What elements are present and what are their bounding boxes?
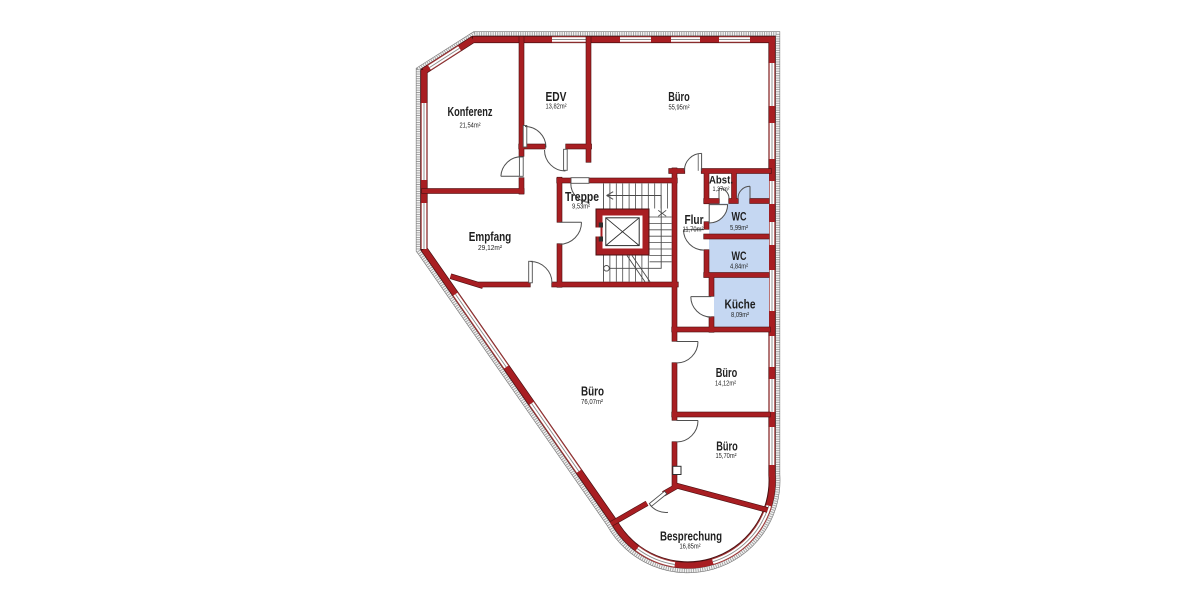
svg-text:1,37m²: 1,37m² [713,186,731,193]
svg-text:Küche: Küche [725,297,756,312]
svg-text:13,82m²: 13,82m² [546,104,568,111]
svg-text:Besprechung: Besprechung [660,529,722,544]
svg-text:11,70m²: 11,70m² [683,227,705,234]
svg-text:21,54m²: 21,54m² [460,123,482,130]
svg-text:Büro: Büro [581,384,604,399]
svg-text:9,53m²: 9,53m² [572,204,591,211]
svg-text:WC: WC [732,210,747,224]
svg-text:4,84m²: 4,84m² [730,264,749,271]
svg-text:Büro: Büro [716,439,738,454]
svg-text:55,95m²: 55,95m² [669,105,691,112]
svg-text:8,09m²: 8,09m² [731,312,750,319]
svg-text:16,85m²: 16,85m² [680,544,702,551]
svg-text:Empfang: Empfang [469,229,512,244]
svg-text:Konferenz: Konferenz [448,104,493,119]
svg-text:Büro: Büro [668,89,690,104]
svg-text:15,70m²: 15,70m² [716,453,738,460]
svg-text:Abst.: Abst. [709,175,733,187]
svg-text:Büro: Büro [716,365,738,380]
svg-text:5,99m²: 5,99m² [730,225,749,232]
svg-text:14,12m²: 14,12m² [715,380,737,387]
svg-text:EDV: EDV [546,89,567,104]
svg-text:76,07m²: 76,07m² [581,399,604,406]
svg-text:Flur: Flur [685,212,704,227]
svg-text:Treppe: Treppe [565,189,599,204]
svg-text:29,12m²: 29,12m² [478,245,503,252]
svg-text:WC: WC [732,249,747,263]
